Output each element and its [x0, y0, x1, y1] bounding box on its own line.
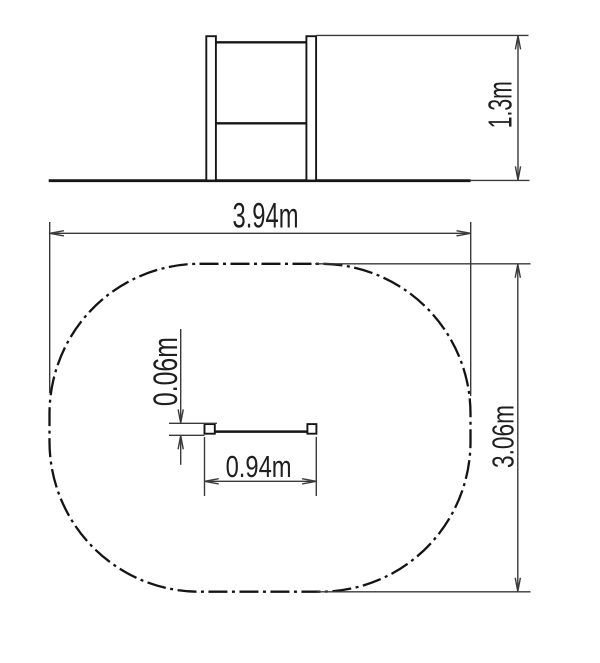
svg-text:3.06m: 3.06m — [486, 405, 521, 468]
svg-text:3.94m: 3.94m — [233, 196, 299, 235]
svg-text:1.3m: 1.3m — [482, 81, 519, 128]
svg-text:0.06m: 0.06m — [147, 337, 185, 406]
svg-text:0.94m: 0.94m — [226, 449, 292, 484]
